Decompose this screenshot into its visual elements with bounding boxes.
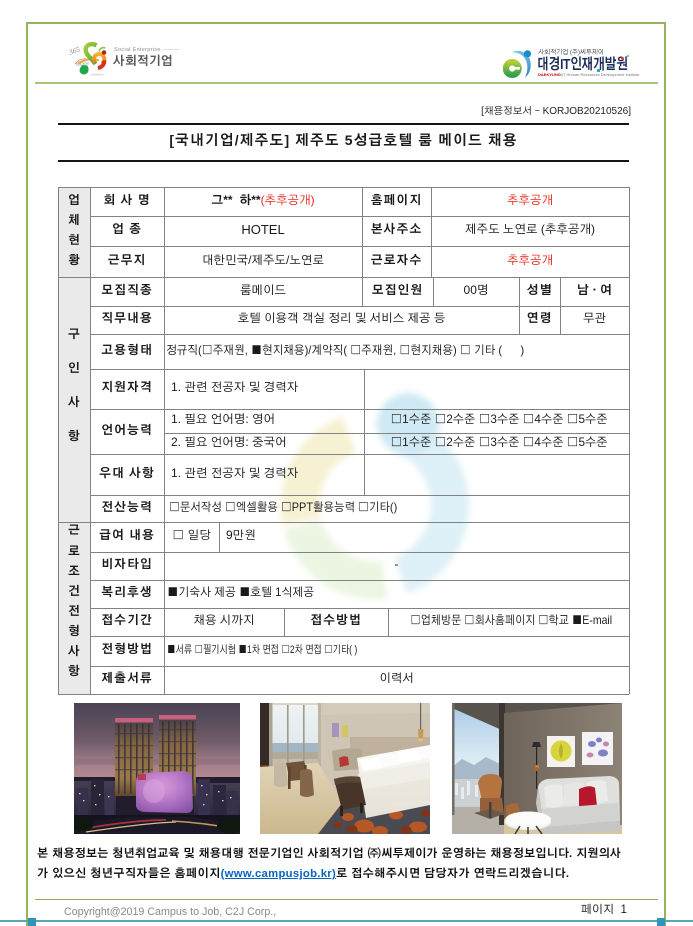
svg-text:365: 365 [68,44,81,57]
